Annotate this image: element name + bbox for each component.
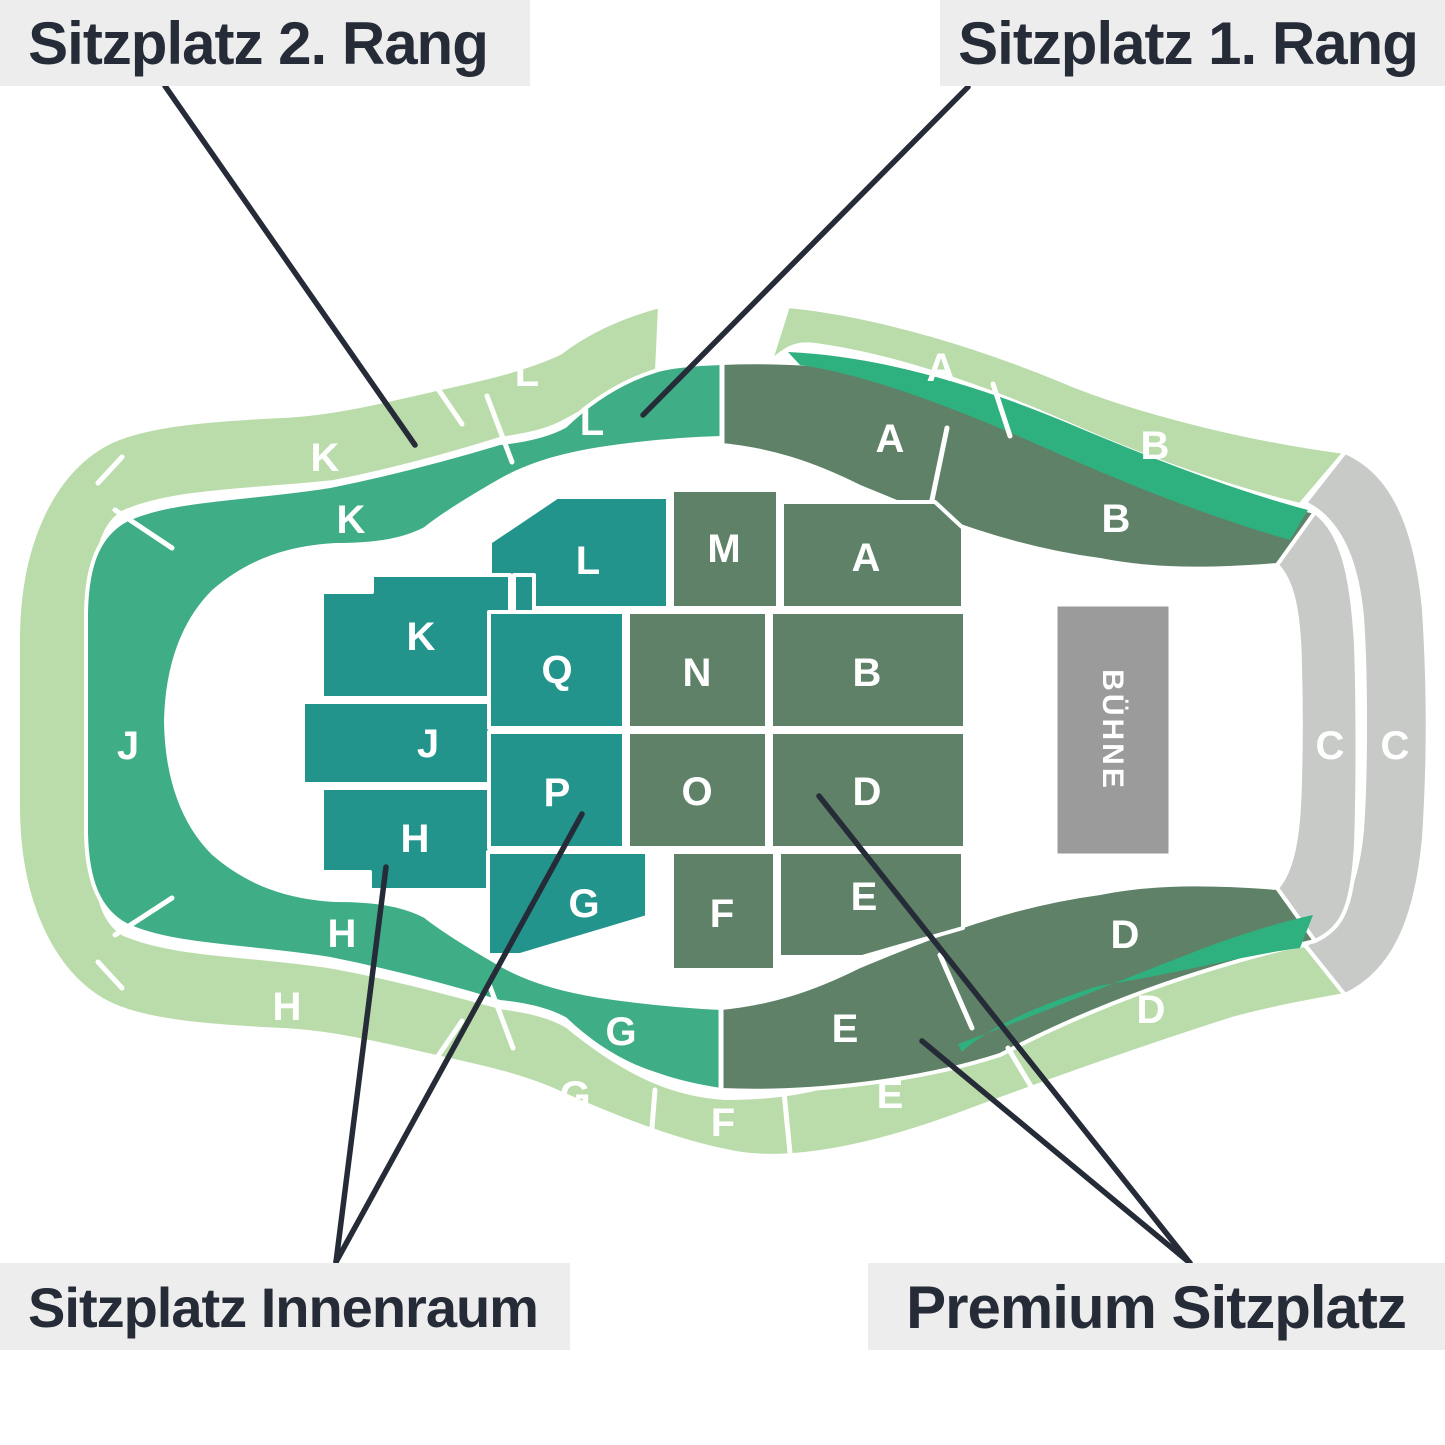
section-label-outer-G: G (559, 1074, 590, 1118)
section-label-gallery-C-outer: C (1381, 724, 1410, 768)
section-label-outer-E: E (877, 1073, 904, 1117)
section-label-floor-P: P (544, 771, 571, 815)
section-label-floor-H: H (401, 817, 430, 861)
section-label-inner-G: G (605, 1010, 636, 1054)
section-label-inner-L: L (580, 400, 604, 444)
section-label-floor-L: L (576, 539, 600, 583)
section-label-floor-O: O (681, 770, 712, 814)
section-label-ringpremium-D: D (1111, 913, 1140, 957)
callout-label-innenraum: Sitzplatz Innenraum (28, 1276, 538, 1339)
callout-label-premium: Premium Sitzplatz (906, 1274, 1406, 1341)
section-label-floor-J: J (417, 722, 439, 766)
section-label-outer-D: D (1137, 988, 1166, 1032)
section-label-floor-E: E (851, 875, 878, 919)
section-label-inner-H: H (328, 912, 357, 956)
section-label-floor-M: M (707, 527, 740, 571)
section-label-floor-F: F (710, 892, 734, 936)
section-label-outer-L: L (515, 351, 539, 395)
section-label-outer-F: F (711, 1101, 735, 1145)
section-label-floor-A: A (852, 536, 881, 580)
section-label-outer-K: K (311, 436, 340, 480)
section-label-floor-D: D (853, 770, 882, 814)
section-label-outer-H: H (273, 985, 302, 1029)
callout-line-rang2 (165, 86, 415, 445)
seating-map: BÜHNE L K A B H G F E D K L J H G A B E … (0, 0, 1445, 1445)
section-label-floor-B: B (853, 651, 882, 695)
section-label-floor-K: K (407, 615, 436, 659)
section-label-floor-N: N (683, 651, 712, 695)
section-label-outer-A: A (927, 346, 956, 390)
stage-label: BÜHNE (1096, 669, 1129, 791)
section-label-floor-Q: Q (541, 648, 572, 692)
section-label-floor-G: G (568, 882, 599, 926)
callout-label-rang2: Sitzplatz 2. Rang (28, 10, 488, 77)
section-label-gallery-C-inner: C (1316, 724, 1345, 768)
callout-label-rang1: Sitzplatz 1. Rang (958, 10, 1418, 77)
section-label-inner-J: J (117, 724, 139, 768)
section-label-inner-K: K (337, 498, 366, 542)
section-label-ringpremium-B: B (1102, 497, 1131, 541)
section-label-outer-B: B (1141, 424, 1170, 468)
section-label-ringpremium-A: A (876, 417, 905, 461)
section-label-ringpremium-E: E (832, 1007, 859, 1051)
